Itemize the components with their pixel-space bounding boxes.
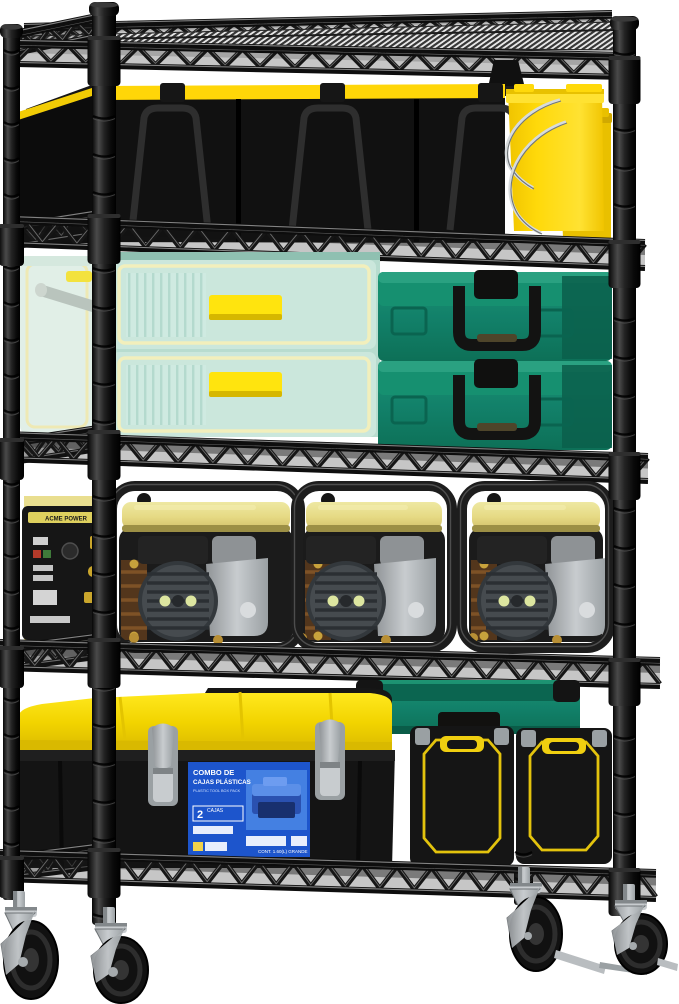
svg-text:PLASTIC TOOL BOX PACK: PLASTIC TOOL BOX PACK [193, 789, 241, 793]
svg-text:CAJAS: CAJAS [207, 808, 224, 814]
svg-text:ACME POWER: ACME POWER [45, 517, 88, 523]
svg-text:CAJAS PLÁSTICAS: CAJAS PLÁSTICAS [193, 779, 251, 786]
svg-text:COMBO DE: COMBO DE [193, 768, 234, 777]
svg-text:2: 2 [197, 809, 203, 821]
svg-text:CONT. 1.60(L) GRANDE: CONT. 1.60(L) GRANDE [258, 849, 308, 854]
